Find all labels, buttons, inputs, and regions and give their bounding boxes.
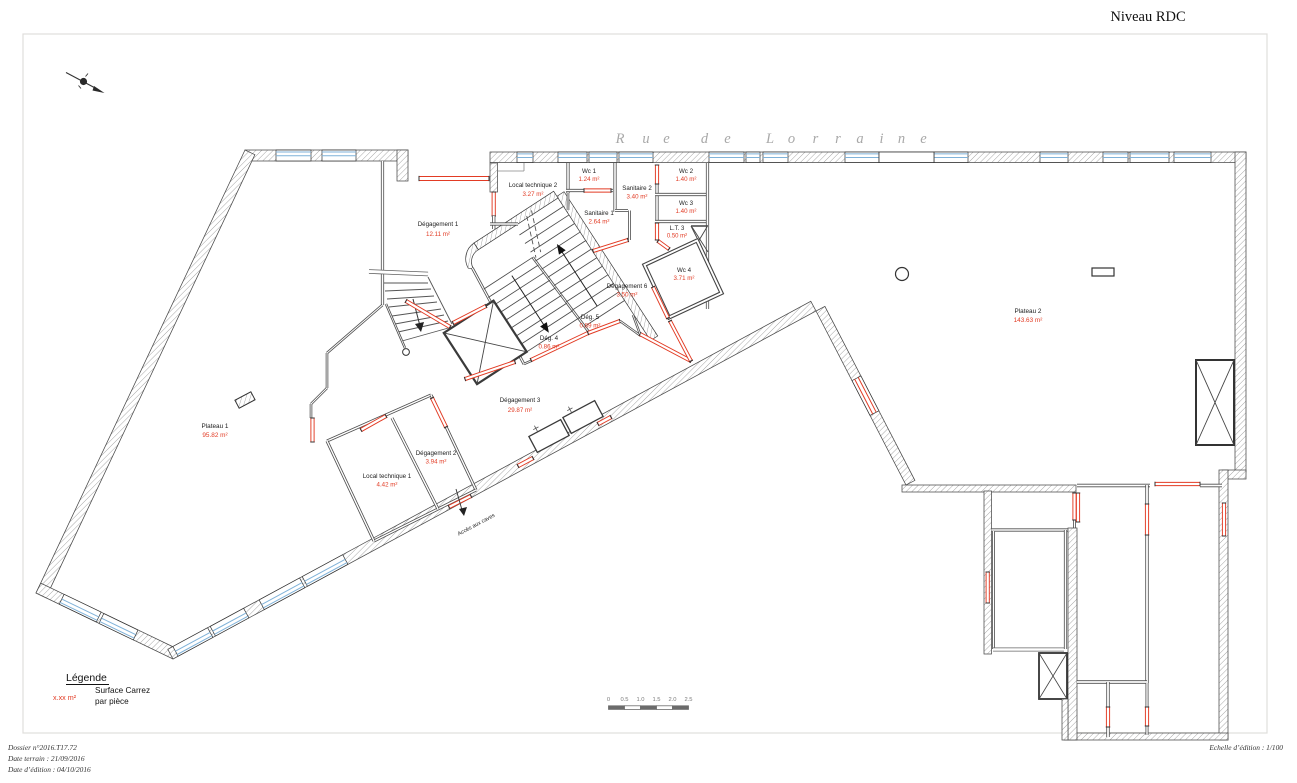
svg-text:1.0: 1.0 — [636, 697, 644, 703]
svg-text:3.71 m²: 3.71 m² — [674, 275, 695, 282]
svg-text:Plateau 1: Plateau 1 — [201, 423, 228, 430]
svg-text:Sanitaire 2: Sanitaire 2 — [622, 185, 652, 192]
svg-text:x.xx m²: x.xx m² — [53, 693, 77, 702]
svg-text:3.40 m²: 3.40 m² — [627, 194, 648, 201]
svg-text:1.40 m²: 1.40 m² — [676, 208, 697, 215]
svg-text:e: e — [663, 131, 670, 147]
svg-text:e: e — [724, 131, 731, 147]
svg-text:Dégagement 1: Dégagement 1 — [418, 221, 459, 228]
svg-text:L.T. 3: L.T. 3 — [670, 226, 685, 232]
svg-text:Dossier n°2016.T17.72: Dossier n°2016.T17.72 — [7, 743, 77, 752]
svg-text:n: n — [898, 131, 905, 147]
svg-text:Date d’édition : 04/10/2016: Date d’édition : 04/10/2016 — [7, 765, 91, 774]
svg-text:r: r — [813, 131, 819, 147]
svg-text:2.64 m²: 2.64 m² — [589, 219, 610, 226]
svg-text:3.27 m²: 3.27 m² — [523, 191, 544, 198]
svg-text:a: a — [856, 131, 863, 147]
svg-text:0.50 m²: 0.50 m² — [667, 234, 687, 240]
svg-text:Légende: Légende — [66, 672, 107, 684]
svg-text:2.5: 2.5 — [684, 697, 692, 703]
svg-text:d: d — [701, 131, 709, 147]
svg-text:par pièce: par pièce — [95, 697, 129, 706]
svg-text:143.63 m²: 143.63 m² — [1014, 317, 1043, 324]
svg-text:3.94 m²: 3.94 m² — [426, 459, 447, 466]
svg-text:0: 0 — [607, 697, 610, 703]
svg-text:Wc 3: Wc 3 — [679, 200, 694, 207]
svg-text:Sanitaire 1: Sanitaire 1 — [584, 210, 614, 217]
svg-text:Date terrain : 21/09/2016: Date terrain : 21/09/2016 — [7, 754, 85, 763]
svg-text:1.24 m²: 1.24 m² — [579, 176, 600, 183]
svg-text:L: L — [765, 131, 774, 147]
svg-text:Dégagement 3: Dégagement 3 — [500, 397, 541, 404]
svg-text:Local technique 1: Local technique 1 — [363, 473, 412, 480]
svg-text:95.82 m²: 95.82 m² — [202, 432, 227, 439]
svg-text:Wc 2: Wc 2 — [679, 168, 694, 175]
svg-text:Niveau RDC: Niveau RDC — [1110, 9, 1185, 25]
svg-text:0.5: 0.5 — [620, 697, 628, 703]
svg-text:Wc 4: Wc 4 — [677, 267, 692, 274]
svg-text:1.5: 1.5 — [652, 697, 660, 703]
svg-text:Dégagement 2: Dégagement 2 — [416, 450, 457, 457]
svg-text:29.87 m²: 29.87 m² — [508, 407, 532, 414]
svg-text:2.0: 2.0 — [668, 697, 676, 703]
svg-text:4.42 m²: 4.42 m² — [377, 482, 398, 489]
svg-text:12.11 m²: 12.11 m² — [426, 231, 450, 238]
svg-text:Surface Carrez: Surface Carrez — [95, 686, 150, 695]
svg-text:r: r — [835, 131, 841, 147]
svg-text:Plateau 2: Plateau 2 — [1014, 308, 1041, 315]
svg-text:Echelle d’édition : 1/100: Echelle d’édition : 1/100 — [1208, 743, 1283, 752]
svg-text:R: R — [615, 131, 625, 147]
svg-text:0.89 m²: 0.89 m² — [580, 323, 601, 330]
svg-text:u: u — [642, 131, 649, 147]
svg-text:0.86 m²: 0.86 m² — [539, 344, 560, 351]
svg-text:Local technique 2: Local technique 2 — [509, 182, 558, 189]
svg-text:e: e — [920, 131, 927, 147]
svg-text:o: o — [788, 131, 795, 147]
svg-text:i: i — [879, 131, 883, 147]
svg-text:Wc 1: Wc 1 — [582, 168, 597, 175]
svg-text:1.40 m²: 1.40 m² — [676, 176, 697, 183]
svg-text:Dég. 4: Dég. 4 — [540, 335, 559, 342]
svg-text:Dég. 5: Dég. 5 — [581, 314, 600, 321]
svg-text:Dégagement 6: Dégagement 6 — [607, 283, 648, 290]
svg-text:3.50 m²: 3.50 m² — [617, 292, 638, 299]
